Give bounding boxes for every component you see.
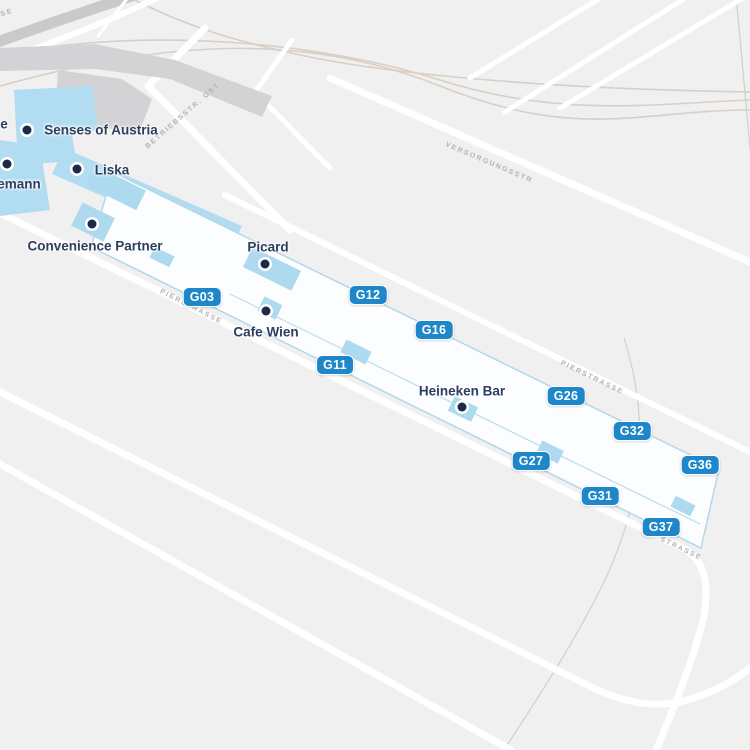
gate-pier — [91, 172, 719, 548]
ring-road — [0, 0, 150, 44]
poi-label[interactable]: Heineken Bar — [419, 384, 505, 399]
gate-badge[interactable]: G12 — [349, 285, 388, 305]
poi-label[interactable]: Convenience Partner — [27, 239, 162, 254]
gate-badge[interactable]: G11 — [316, 355, 354, 375]
gate-badge[interactable]: G37 — [642, 517, 681, 537]
gate-badge[interactable]: G32 — [613, 421, 652, 441]
poi-dot-icon[interactable] — [3, 160, 12, 169]
gate-badge[interactable]: G31 — [581, 486, 620, 506]
poi-dot-icon[interactable] — [262, 307, 271, 316]
poi-dot-icon[interactable] — [88, 220, 97, 229]
poi-dot-icon[interactable] — [261, 260, 270, 269]
gate-badge[interactable]: G36 — [681, 455, 720, 475]
poi-label[interactable]: Liska — [95, 163, 130, 178]
poi-dot-icon[interactable] — [458, 403, 467, 412]
gate-badge[interactable]: G03 — [183, 287, 222, 307]
airport-map[interactable]: SEBETRIEBSSTR. OSTVERSORGUNGSSTRPIERSTRA… — [0, 0, 750, 750]
gate-badge[interactable]: G26 — [547, 386, 586, 406]
poi-label[interactable]: Cafe Wien — [233, 325, 298, 340]
poi-label[interactable]: Picard — [247, 240, 288, 255]
boundary-lines — [504, 0, 750, 750]
poi-label[interactable]: emann — [0, 177, 41, 192]
gate-badge[interactable]: G27 — [512, 451, 551, 471]
map-base-layer — [0, 0, 750, 750]
poi-dot-icon[interactable] — [73, 165, 82, 174]
partial-poi-label: e — [0, 117, 8, 132]
gate-badge[interactable]: G16 — [415, 320, 454, 340]
poi-dot-icon[interactable] — [23, 126, 32, 135]
poi-label[interactable]: Senses of Austria — [44, 123, 158, 138]
